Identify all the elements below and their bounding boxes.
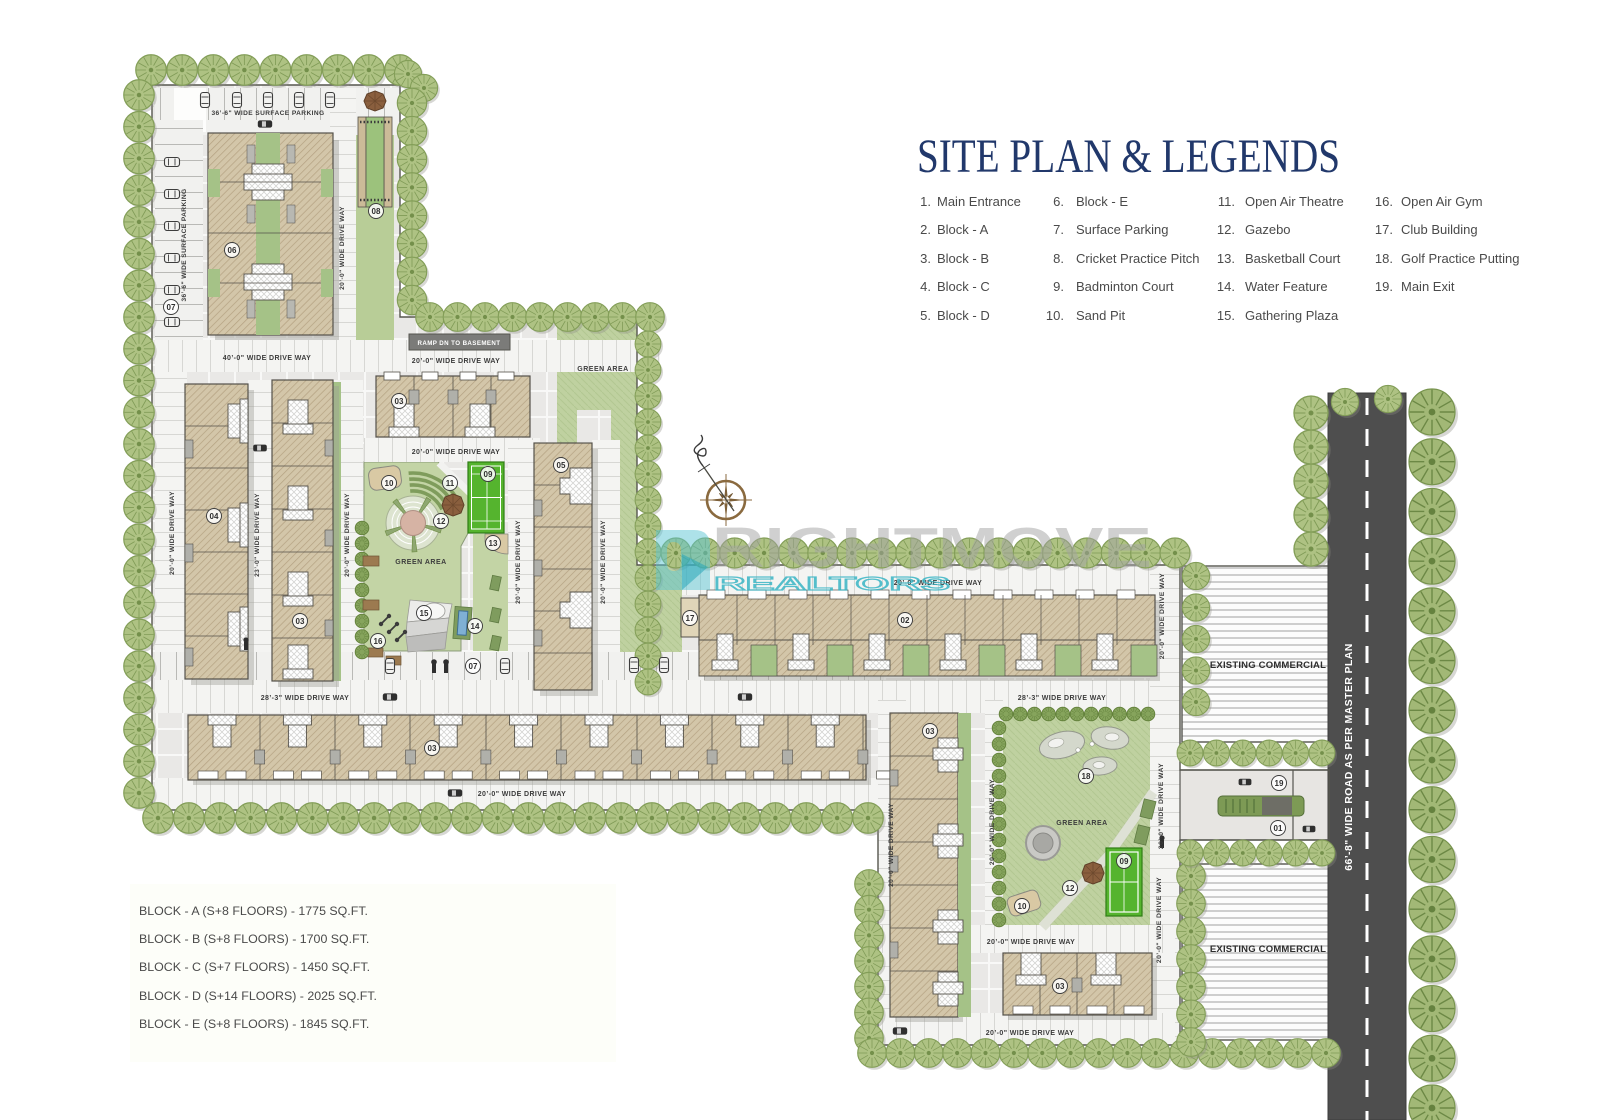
svg-text:BLOCK - B (S+8 FLOORS) - 1700: BLOCK - B (S+8 FLOORS) - 1700 SQ.FT. (139, 932, 369, 946)
svg-text:36’-6" WIDE SURFACE PARKING: 36’-6" WIDE SURFACE PARKING (181, 188, 188, 301)
svg-text:12.: 12. (1217, 222, 1235, 237)
svg-text:Open Air Theatre: Open Air Theatre (1245, 194, 1344, 209)
svg-text:7.: 7. (1053, 222, 1064, 237)
svg-text:20’-0" WIDE DRIVE WAY: 20’-0" WIDE DRIVE WAY (478, 791, 566, 798)
svg-text:03: 03 (296, 617, 305, 626)
svg-text:20’-0" WIDE DRIVE WAY: 20’-0" WIDE DRIVE WAY (888, 803, 895, 887)
svg-text:10.: 10. (1046, 308, 1064, 323)
svg-text:3.: 3. (920, 251, 931, 266)
svg-text:Open Air Gym: Open Air Gym (1401, 194, 1483, 209)
svg-text:BLOCK - E (S+8 FLOORS) - 1845: BLOCK - E (S+8 FLOORS) - 1845 SQ.FT. (139, 1017, 369, 1031)
svg-text:Surface Parking: Surface Parking (1076, 222, 1169, 237)
svg-text:BLOCK - C (S+7 FLOORS) - 1450: BLOCK - C (S+7 FLOORS) - 1450 SQ.FT. (139, 960, 370, 974)
svg-text:15: 15 (420, 609, 429, 618)
svg-text:19.: 19. (1375, 279, 1393, 294)
svg-text:Golf Practice Putting: Golf Practice Putting (1401, 251, 1520, 266)
svg-text:Gazebo: Gazebo (1245, 222, 1291, 237)
svg-text:10: 10 (385, 479, 394, 488)
svg-text:20’-0" WIDE DRIVE WAY: 20’-0" WIDE DRIVE WAY (1159, 573, 1166, 659)
svg-text:Block - A: Block - A (937, 222, 989, 237)
svg-text:Block - C: Block - C (937, 279, 990, 294)
svg-text:BLOCK - D (S+14 FLOORS) - 2025: BLOCK - D (S+14 FLOORS) - 2025 SQ.FT. (139, 989, 377, 1003)
svg-text:4.: 4. (920, 279, 931, 294)
svg-text:20’-0" WIDE DRIVE WAY: 20’-0" WIDE DRIVE WAY (1158, 763, 1165, 849)
svg-text:GREEN AREA: GREEN AREA (1056, 820, 1107, 827)
svg-text:20’-0" WIDE DRIVE WAY: 20’-0" WIDE DRIVE WAY (515, 520, 522, 604)
svg-text:Basketball Court: Basketball Court (1245, 251, 1341, 266)
svg-text:07: 07 (167, 303, 176, 312)
svg-text:Main Entrance: Main Entrance (937, 194, 1021, 209)
svg-text:Water Feature: Water Feature (1245, 279, 1328, 294)
svg-text:GREEN AREA: GREEN AREA (395, 559, 446, 566)
svg-text:03: 03 (428, 744, 437, 753)
svg-text:Sand Pit: Sand Pit (1076, 308, 1126, 323)
svg-text:14.: 14. (1217, 279, 1235, 294)
svg-text:09: 09 (1120, 857, 1129, 866)
svg-text:13.: 13. (1217, 251, 1235, 266)
svg-text:66’-8" WIDE ROAD AS PER MASTER: 66’-8" WIDE ROAD AS PER MASTER PLAN (1343, 643, 1355, 870)
svg-text:Badminton Court: Badminton Court (1076, 279, 1174, 294)
svg-text:8.: 8. (1053, 251, 1064, 266)
svg-text:05: 05 (557, 461, 566, 470)
svg-text:07: 07 (469, 662, 478, 671)
svg-text:11: 11 (446, 479, 455, 488)
svg-text:06: 06 (228, 246, 237, 255)
svg-text:03: 03 (926, 727, 935, 736)
svg-text:17: 17 (686, 614, 695, 623)
svg-text:11.: 11. (1218, 194, 1235, 209)
svg-text:10: 10 (1018, 902, 1027, 911)
svg-text:15.: 15. (1217, 308, 1235, 323)
svg-text:09: 09 (484, 470, 493, 479)
svg-text:20’-0" WIDE DRIVE WAY: 20’-0" WIDE DRIVE WAY (989, 779, 996, 865)
svg-text:EXISTING COMMERCIAL: EXISTING COMMERCIAL (1210, 944, 1326, 955)
svg-text:Club Building: Club Building (1401, 222, 1478, 237)
svg-text:20’-0" WIDE DRIVE WAY: 20’-0" WIDE DRIVE WAY (987, 939, 1075, 946)
svg-text:Gathering Plaza: Gathering Plaza (1245, 308, 1339, 323)
svg-text:20’-0" WIDE DRIVE WAY: 20’-0" WIDE DRIVE WAY (169, 491, 176, 575)
svg-text:19: 19 (1275, 779, 1284, 788)
svg-text:18.: 18. (1375, 251, 1393, 266)
svg-text:BLOCK - A (S+8 FLOORS) - 1775: BLOCK - A (S+8 FLOORS) - 1775 SQ.FT. (139, 904, 368, 918)
svg-text:20’-0" WIDE DRIVE WAY: 20’-0" WIDE DRIVE WAY (600, 520, 607, 604)
svg-text:REALTORS: REALTORS (714, 574, 950, 594)
svg-text:12: 12 (437, 517, 446, 526)
svg-text:18: 18 (1082, 772, 1091, 781)
svg-text:Block - B: Block - B (937, 251, 989, 266)
svg-text:04: 04 (210, 512, 219, 521)
svg-text:20’-0" WIDE DRIVE WAY: 20’-0" WIDE DRIVE WAY (339, 206, 346, 290)
svg-text:01: 01 (1274, 824, 1283, 833)
svg-text:GREEN AREA: GREEN AREA (577, 366, 628, 373)
svg-text:16: 16 (374, 637, 383, 646)
svg-text:Cricket Practice Pitch: Cricket Practice Pitch (1076, 251, 1200, 266)
svg-text:Block - E: Block - E (1076, 194, 1128, 209)
svg-text:20’-0" WIDE DRIVE WAY: 20’-0" WIDE DRIVE WAY (986, 1030, 1074, 1037)
svg-text:20’-0" WIDE DRIVE WAY: 20’-0" WIDE DRIVE WAY (344, 493, 351, 577)
svg-text:9.: 9. (1053, 279, 1064, 294)
svg-text:16.: 16. (1375, 194, 1393, 209)
svg-text:13: 13 (489, 539, 498, 548)
svg-text:17.: 17. (1375, 222, 1393, 237)
svg-text:14: 14 (471, 622, 480, 631)
svg-text:5.: 5. (920, 308, 931, 323)
svg-text:Block - D: Block - D (937, 308, 990, 323)
svg-text:03: 03 (395, 397, 404, 406)
svg-text:2.: 2. (920, 222, 931, 237)
svg-text:23’-0" WIDE DRIVE WAY: 23’-0" WIDE DRIVE WAY (254, 493, 261, 577)
svg-text:36’-6" WIDE SURFACE PARKING: 36’-6" WIDE SURFACE PARKING (211, 110, 324, 117)
svg-text:02: 02 (901, 616, 910, 625)
svg-text:SITE PLAN & LEGENDS: SITE PLAN & LEGENDS (917, 130, 1340, 183)
svg-text:RAMP DN TO BASEMENT: RAMP DN TO BASEMENT (417, 340, 500, 347)
svg-text:20’-0" WIDE DRIVE WAY: 20’-0" WIDE DRIVE WAY (412, 449, 500, 456)
svg-text:08: 08 (372, 207, 381, 216)
svg-text:20’-0" WIDE DRIVE WAY: 20’-0" WIDE DRIVE WAY (1156, 877, 1163, 963)
svg-text:40’-0" WIDE DRIVE WAY: 40’-0" WIDE DRIVE WAY (223, 355, 311, 362)
svg-text:28’-3" WIDE DRIVE WAY: 28’-3" WIDE DRIVE WAY (261, 695, 349, 702)
svg-text:EXISTING COMMERCIAL: EXISTING COMMERCIAL (1210, 660, 1326, 671)
svg-text:20’-0" WIDE DRIVE WAY: 20’-0" WIDE DRIVE WAY (412, 358, 500, 365)
svg-text:6.: 6. (1053, 194, 1064, 209)
svg-text:1.: 1. (920, 194, 931, 209)
svg-text:28’-3" WIDE DRIVE WAY: 28’-3" WIDE DRIVE WAY (1018, 695, 1106, 702)
svg-text:12: 12 (1066, 884, 1075, 893)
svg-text:03: 03 (1056, 982, 1065, 991)
svg-text:Main Exit: Main Exit (1401, 279, 1455, 294)
svg-text:RIGHTMOVE: RIGHTMOVE (712, 516, 1152, 580)
